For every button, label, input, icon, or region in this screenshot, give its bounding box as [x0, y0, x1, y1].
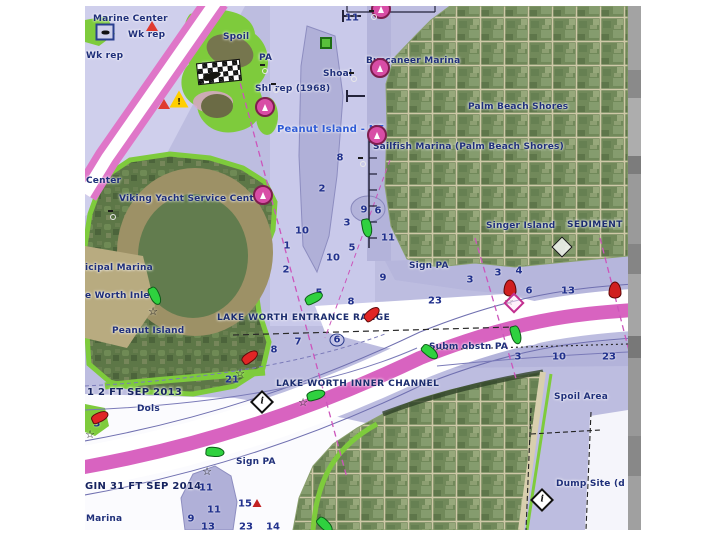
sailboat-icon — [262, 104, 268, 111]
red-triangle-daymark-icon — [253, 499, 262, 507]
info-diamond-icon: i — [530, 488, 554, 512]
lighted-red-buoy-icon — [609, 282, 622, 299]
red-triangle-daymark-icon — [146, 21, 158, 31]
warning-triangle-icon: ! — [170, 91, 189, 108]
marina-icon — [370, 58, 390, 78]
light-star-icon: ☆ — [235, 369, 245, 379]
light-star-icon: ☆ — [202, 467, 212, 477]
red-buoy-icon — [240, 348, 260, 367]
diamond-mark-icon — [551, 236, 572, 257]
sailboat-icon — [377, 65, 383, 72]
markers-layer: ! ☆ ☆ ☆ — [85, 6, 628, 530]
green-buoy-icon — [420, 342, 441, 362]
marina-icon — [255, 97, 275, 117]
red-buoy-icon — [90, 409, 111, 426]
red-triangle-daymark-icon — [158, 99, 170, 109]
green-buoy-icon — [303, 289, 324, 306]
green-daymark-icon — [320, 37, 332, 49]
info-glyph: i — [260, 397, 263, 406]
right-edge-strip — [628, 6, 641, 530]
green-buoy-icon — [205, 446, 225, 458]
light-star-icon: ☆ — [298, 398, 308, 408]
sailboat-icon — [378, 6, 384, 13]
red-buoy-icon — [362, 304, 382, 323]
wreck-symbol-box-icon — [96, 24, 115, 41]
sailboat-icon — [374, 132, 380, 139]
sailboat-icon — [260, 192, 266, 199]
chart-map-canvas[interactable]: Marine Center Wk rep Wk rep Spoil Wks PA… — [85, 6, 628, 530]
info-glyph: i — [540, 495, 543, 504]
info-diamond-icon: i — [250, 390, 274, 414]
chart-screenshot-page: Marine Center Wk rep Wk rep Spoil Wks PA… — [0, 0, 716, 537]
light-star-icon: ☆ — [85, 430, 95, 440]
green-buoy-icon — [146, 285, 163, 306]
green-buoy-icon — [315, 515, 336, 530]
marina-icon — [253, 185, 273, 205]
warning-exclamation: ! — [177, 98, 181, 108]
green-buoy-icon — [509, 325, 524, 346]
green-buoy-icon — [360, 218, 373, 238]
green-buoy-icon — [306, 388, 327, 403]
light-star-icon: ☆ — [148, 307, 158, 317]
marina-icon — [367, 125, 387, 145]
